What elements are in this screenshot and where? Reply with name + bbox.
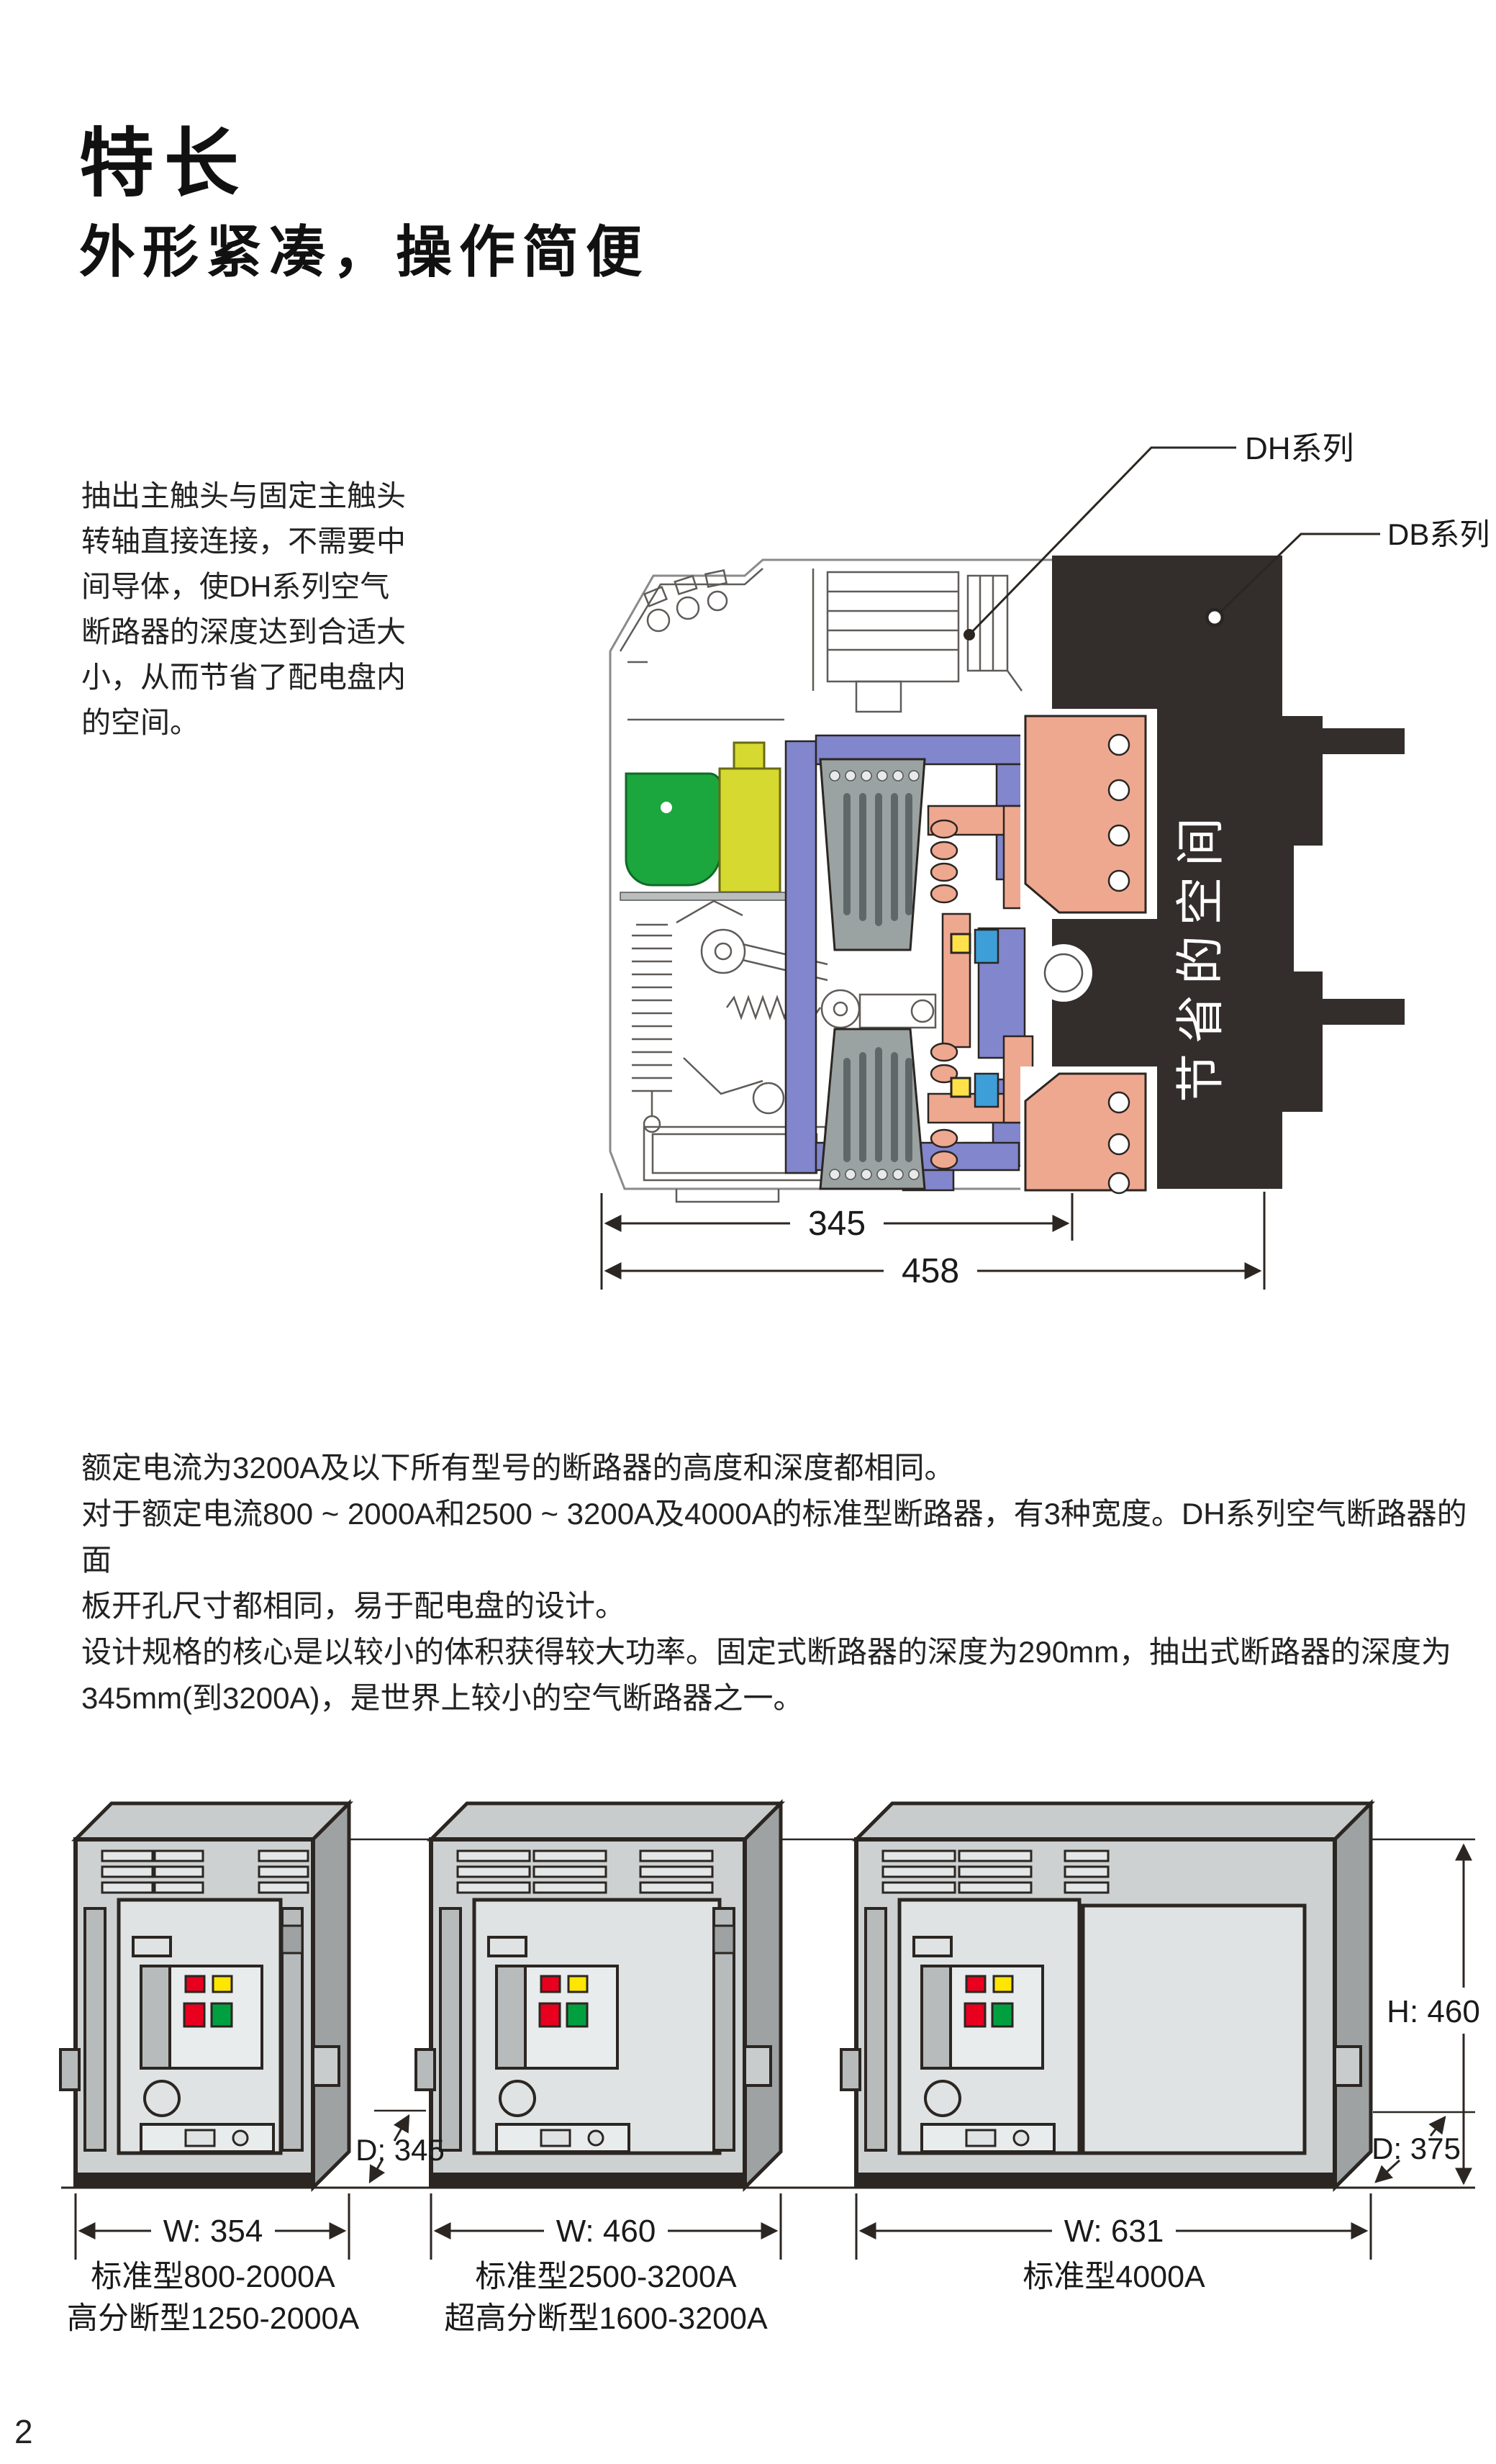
dim-458-label: 458 [902,1252,959,1290]
copper-terminal-bottom [1025,1074,1146,1193]
caption-2-line-2: 超高分断型1600-3200A [444,2301,768,2336]
caption-1-line-2: 高分断型1250-2000A [67,2301,360,2336]
breaker-unit-3 [841,1803,1371,2188]
db-series-label: DB系列 [1387,517,1490,551]
dim-345-label: 345 [808,1205,866,1243]
width-label-3: W: 631 [1064,2214,1164,2249]
dh-leader-dot [964,629,975,640]
arc-chute-top [820,759,925,950]
caption-2-line-1: 标准型2500-3200A [475,2260,737,2294]
catalog-page: 特长 外形紧凑，操作简便 抽出主触头与固定主触头 转轴直接连接，不需要中 间导体… [0,0,1496,2464]
arc-chute-bottom [820,1029,925,1189]
caption-1-line-1: 标准型800-2000A [91,2260,335,2294]
green-component-dot [661,802,672,813]
breaker-unit-1 [60,1803,349,2188]
saved-space-label: 节省的空间 [1174,807,1228,1102]
model-size-figure: W: 354 W: 460 W: 631 D: 345 D: 375 H: 46… [60,1803,1491,2336]
depth-label-12: D: 345 [355,2133,445,2167]
pivot-circle [1045,954,1082,992]
db-leader-dot [1207,610,1223,625]
width-label-1: W: 354 [163,2214,263,2249]
height-label: H: 460 [1387,1994,1480,2029]
breaker-unit-2 [416,1803,781,2188]
copper-terminal-top [1025,716,1146,912]
cross-section-figure: 节省的空间 DH系列 DB系列 345 458 [602,431,1490,1291]
figures-layer: 节省的空间 DH系列 DB系列 345 458 [0,0,1496,2464]
depth-label-3: D: 375 [1372,2132,1461,2165]
green-component [626,774,720,885]
dh-series-label: DH系列 [1245,431,1354,466]
shelf-line [620,892,802,900]
width-label-2: W: 460 [556,2214,656,2249]
caption-3-line-1: 标准型4000A [1023,2260,1205,2294]
